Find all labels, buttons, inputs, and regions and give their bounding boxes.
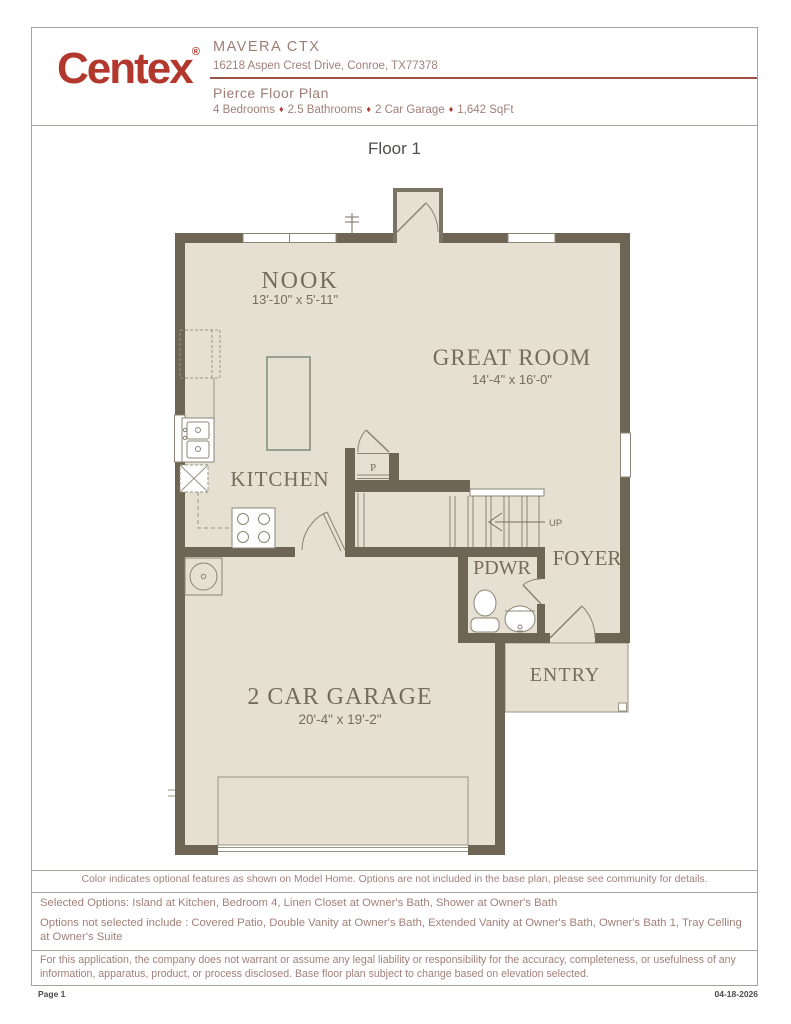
nook-dims: 13'-10" x 5'-11" [252,292,339,307]
footer-not-selected-options: Options not selected include : Covered P… [40,916,752,944]
pantry-label: P [370,462,376,474]
hose-bib-icon [345,213,359,233]
stairs-up-label: UP [549,518,562,529]
diamond-icon: ♦ [275,104,288,114]
registered-mark: ® [192,46,200,58]
footer-divider-2 [31,950,758,951]
plan-details: 4 Bedrooms♦2.5 Bathrooms♦2 Car Garage♦1,… [213,104,514,116]
garage-door [218,777,468,855]
floor-label: Floor 1 [31,139,758,159]
centex-logo-text: Centex [57,44,192,93]
toilet-tank [471,618,499,632]
floor-plan-page: Centex® MAVERA CTX 16218 Aspen Crest Dri… [0,0,791,1024]
garage-label: 2 CAR GARAGE [247,684,432,710]
range [232,508,275,548]
great-room-label: GREAT ROOM [433,345,591,370]
detail-sqft: 1,642 SqFt [457,104,513,116]
stair-rail [470,489,544,496]
footer-disclaimer: For this application, the company does n… [40,954,750,981]
exterior-tick [168,790,175,796]
detail-garage: 2 Car Garage [375,104,445,116]
detail-bedrooms: 4 Bedrooms [213,104,275,116]
community-name: MAVERA CTX [213,39,320,55]
footer-divider-1 [31,892,758,893]
floor-plan-drawing: NOOK 13'-10" x 5'-11" GREAT ROOM 14'-4" … [168,180,638,870]
water-heater [185,558,222,595]
date-stamp: 04-18-2026 [715,989,758,999]
header-divider [31,125,758,126]
pdwr-label: PDWR [473,557,531,579]
community-address: 16218 Aspen Crest Drive, Conroe, TX77378 [213,60,438,72]
plan-title: Pierce Floor Plan [213,85,329,101]
diamond-icon: ♦ [445,104,458,114]
footer-top-divider [31,870,758,871]
nook-label: NOOK [261,268,338,294]
porch-post [619,703,627,711]
rear-single-window [508,234,555,243]
header-accent-divider [210,77,757,79]
detail-bathrooms: 2.5 Bathrooms [288,104,363,116]
page-number: Page 1 [38,989,65,999]
diamond-icon: ♦ [362,104,375,114]
garage-dims: 20'-4" x 19'-2" [298,712,381,727]
rear-door-opening [397,233,439,243]
kitchen-label: KITCHEN [230,467,329,491]
footer-selected-options: Selected Options: Island at Kitchen, Bed… [40,897,750,909]
footer-note-color: Color indicates optional features as sho… [31,874,758,885]
great-room-dims: 14'-4" x 16'-0" [472,372,552,387]
toilet-bowl [474,590,496,616]
pdwr-sink [505,606,535,632]
great-room-window [621,433,631,477]
entry-label: ENTRY [530,664,601,686]
centex-logo: Centex® [57,44,200,94]
foyer-label: FOYER [553,546,622,570]
